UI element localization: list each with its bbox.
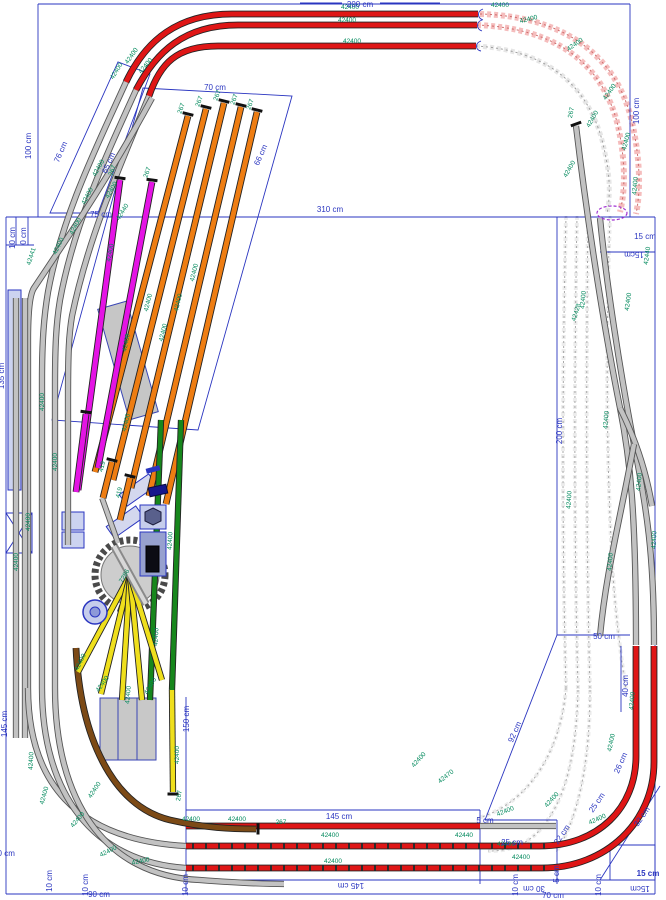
- dimension-label: 15cm: [624, 250, 644, 259]
- dimension-label: 10 cm: [594, 874, 603, 896]
- part-number-label: 42400: [174, 746, 181, 764]
- part-number-label: 42400: [338, 17, 356, 24]
- part-number-label: 42400: [343, 38, 361, 45]
- dimension-label: 0 cm: [19, 227, 28, 245]
- dimension-label: 100 cm: [24, 133, 33, 160]
- part-number-label: 42400: [228, 816, 246, 823]
- part-number-label: 42400: [39, 786, 51, 806]
- buffer-stop: [115, 177, 126, 179]
- part-number-label: 42400: [52, 453, 59, 471]
- red-main-top-3-outline: [149, 46, 476, 96]
- hidden-gray-top-edge: [476, 46, 609, 214]
- part-number-label: 42441: [25, 246, 37, 266]
- buffer-stop: [201, 106, 212, 109]
- buffer-stop: [81, 411, 92, 413]
- track-plan-canvas: 4240042400424004240042400424004240042400…: [0, 0, 666, 900]
- track-plan-page: 4240042400424004240042400424004240042400…: [0, 0, 666, 900]
- hidden-red-2: [477, 25, 624, 212]
- dimension-label: 40 cm: [621, 675, 630, 697]
- part-number-label: 42400: [512, 854, 530, 861]
- red-main-top-3: [149, 46, 476, 96]
- part-number-label: 42400: [167, 531, 175, 550]
- part-number-label: 42400: [606, 733, 617, 753]
- yellow-tail: [172, 690, 173, 792]
- dimension-label: 15 cm: [637, 869, 660, 878]
- hidden-red-2-edge: [477, 25, 624, 212]
- buffer-stop: [236, 104, 247, 107]
- part-number-label: 42400: [324, 858, 342, 865]
- dimension-label: 200 cm: [555, 418, 564, 445]
- signal-hex-icon: [145, 508, 161, 525]
- dimension-label: 10 cm: [181, 874, 190, 896]
- gray-right-siding: [600, 444, 634, 636]
- dimension-label: 150 cm: [182, 706, 191, 733]
- part-number-label: 42400: [496, 805, 516, 818]
- red-right-1: [186, 646, 636, 846]
- dimension-label: 70 cm: [204, 83, 226, 92]
- dimension-label: 66 cm: [252, 143, 269, 167]
- part-number-label: 42400: [13, 553, 20, 571]
- part-number-label: 267: [175, 789, 184, 801]
- dimension-label: 92 cm: [506, 720, 523, 744]
- red-main-top-2: [136, 25, 477, 90]
- dimension-label: 90 cm: [88, 890, 110, 899]
- engine-shed: [100, 698, 156, 760]
- part-number-label: 42400: [566, 490, 574, 509]
- buffer-stop: [252, 109, 263, 112]
- dimension-label: 30 cm: [523, 884, 545, 893]
- part-number-label: 267: [142, 166, 152, 179]
- dimension-label: 25 cm: [587, 791, 607, 814]
- dimension-label: 26 cm: [612, 751, 629, 775]
- dimension-label: 5 cm: [476, 816, 494, 825]
- dimension-label: 50 cm: [593, 632, 615, 641]
- dimension-label: 10 cm: [81, 874, 90, 896]
- dimension-label: 145 cm: [0, 711, 9, 738]
- buffer-stop: [183, 113, 194, 116]
- dimension-label: 25 cm: [501, 838, 523, 847]
- part-number-label: 42400: [143, 676, 158, 695]
- red-right-1-outline: [186, 646, 636, 846]
- dimension-label: 10 cm: [8, 227, 17, 249]
- dimension-label: 100 cm: [632, 98, 641, 125]
- dimension-label: 310 cm: [317, 205, 344, 214]
- dimension-label: 145 cm: [326, 812, 353, 821]
- part-number-label: 267: [567, 106, 576, 118]
- dimension-label: 15 cm: [634, 232, 656, 241]
- hidden-gray-top: [476, 46, 609, 214]
- crane-dark-door: [146, 546, 159, 572]
- water-tower-top: [90, 607, 100, 617]
- part-number-label: 42400: [28, 751, 36, 770]
- part-number-label: 42400: [106, 243, 116, 262]
- part-number-label: 42400: [602, 82, 618, 101]
- part-number-label: 42400: [410, 751, 428, 769]
- part-number-label: 267: [276, 819, 287, 826]
- part-number-label: 42400: [87, 780, 103, 799]
- buffer-stop: [571, 122, 581, 126]
- part-number-label: 42400: [153, 627, 161, 646]
- part-number-label: 42400: [182, 816, 200, 823]
- part-number-label: 42400: [109, 61, 125, 80]
- part-number-label: 42428: [570, 302, 582, 322]
- part-number-label: 42400: [321, 832, 339, 839]
- dimension-label: 76 cm: [52, 140, 69, 164]
- part-number-label: 42400: [562, 159, 577, 178]
- part-number-label: 42400: [39, 393, 46, 411]
- dimension-label: 10 cm: [511, 874, 520, 896]
- dimension-label: 10 cm: [0, 849, 15, 858]
- dimension-label: 75 cm: [90, 210, 112, 219]
- part-number-label: 42400: [491, 2, 509, 9]
- dimension-label: 200 cm: [347, 0, 374, 9]
- part-number-label: 419: [98, 460, 108, 473]
- part-number-label: 42440: [455, 832, 473, 839]
- part-number-label: 42470: [437, 768, 456, 785]
- buffer-stop: [219, 100, 230, 103]
- part-number-label: 42400: [624, 292, 634, 311]
- part-number-label: 42400: [25, 513, 32, 531]
- dimension-label: 5 cm: [552, 865, 561, 883]
- part-number-label: 42400: [651, 530, 659, 549]
- dimension-label: 135 cm: [0, 363, 6, 390]
- dimension-label: 15cm: [630, 884, 650, 893]
- dimension-label: 10 cm: [45, 870, 54, 892]
- dimension-label: 145 cm: [338, 881, 365, 890]
